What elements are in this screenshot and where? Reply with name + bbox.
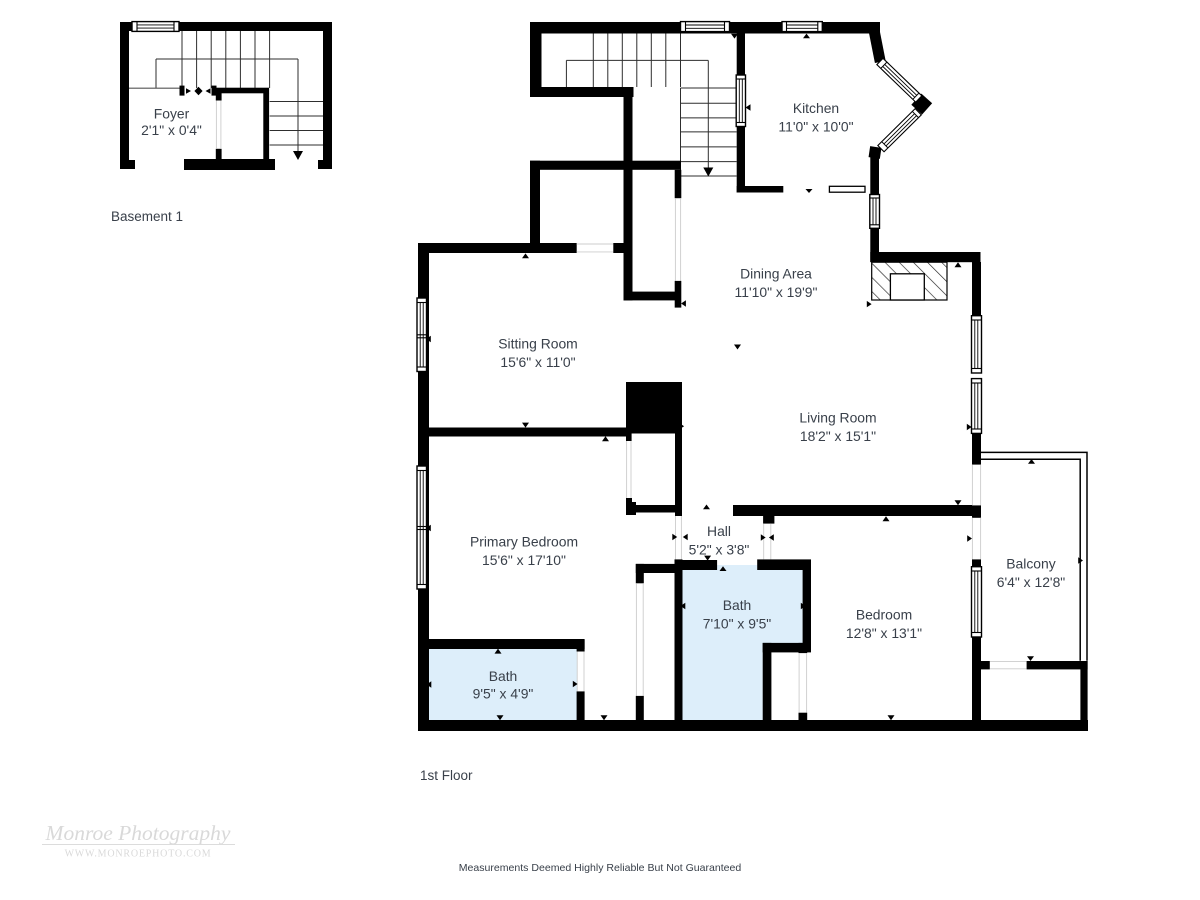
svg-text:7'10" x 9'5": 7'10" x 9'5" [703, 616, 772, 632]
svg-text:12'8" x 13'1": 12'8" x 13'1" [846, 625, 922, 641]
svg-text:Foyer: Foyer [154, 106, 190, 122]
svg-text:18'2" x 15'1": 18'2" x 15'1" [800, 428, 876, 444]
svg-text:11'0" x 10'0": 11'0" x 10'0" [778, 119, 853, 135]
svg-text:15'6" x 17'10": 15'6" x 17'10" [482, 552, 566, 568]
svg-text:Monroe Photography: Monroe Photography [45, 821, 231, 845]
svg-text:Living Room: Living Room [799, 410, 876, 426]
svg-text:Kitchen: Kitchen [793, 100, 839, 116]
svg-text:2'1" x 0'4": 2'1" x 0'4" [141, 122, 202, 138]
svg-text:6'4" x 12'8": 6'4" x 12'8" [997, 574, 1066, 590]
svg-text:Primary Bedroom: Primary Bedroom [470, 534, 578, 550]
svg-text:Measurements Deemed Highly Rel: Measurements Deemed Highly Reliable But … [459, 862, 742, 874]
svg-text:Hall: Hall [707, 523, 731, 539]
svg-text:9'5" x 4'9": 9'5" x 4'9" [473, 686, 534, 702]
svg-text:15'6" x 11'0": 15'6" x 11'0" [500, 354, 575, 370]
svg-text:5'2" x 3'8": 5'2" x 3'8" [689, 542, 750, 558]
svg-text:Bedroom: Bedroom [856, 607, 912, 623]
svg-text:Dining Area: Dining Area [740, 266, 812, 282]
svg-text:WWW.MONROEPHOTO.COM: WWW.MONROEPHOTO.COM [65, 849, 212, 860]
svg-text:1st Floor: 1st Floor [420, 768, 473, 783]
svg-text:Bath: Bath [723, 597, 752, 613]
svg-text:Sitting Room: Sitting Room [498, 336, 578, 352]
svg-text:Balcony: Balcony [1006, 556, 1055, 572]
svg-text:11'10" x 19'9": 11'10" x 19'9" [735, 284, 818, 300]
svg-text:Bath: Bath [489, 668, 518, 684]
svg-text:Basement 1: Basement 1 [111, 209, 183, 224]
